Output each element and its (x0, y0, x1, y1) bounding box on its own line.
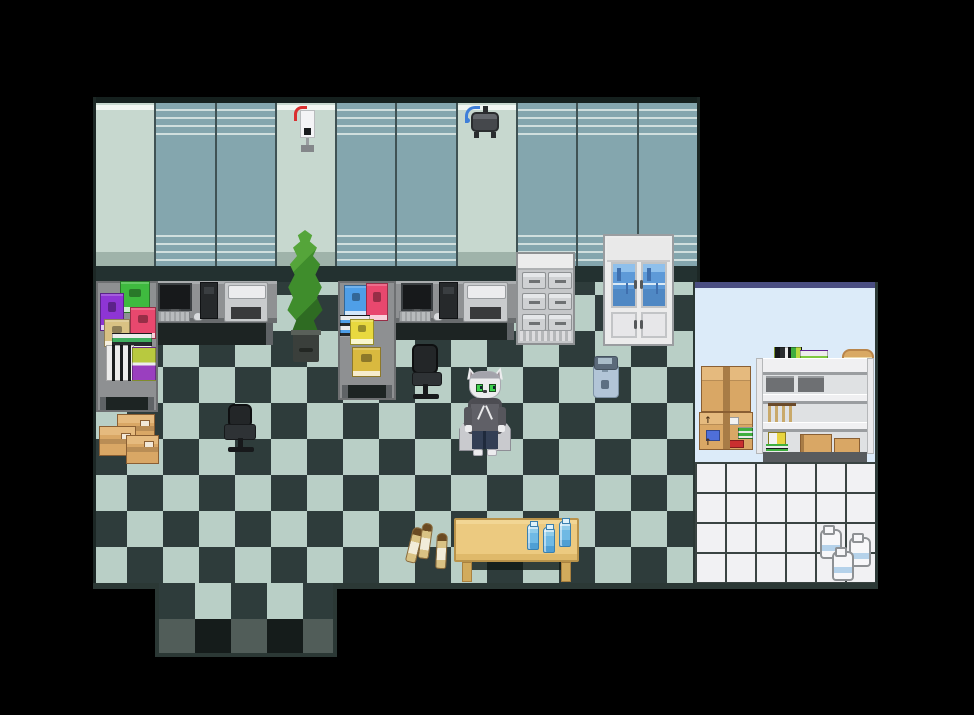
chair-stem (423, 384, 428, 394)
table-shadow (472, 562, 561, 570)
wall-panel-window (215, 97, 275, 282)
computer-monitor[interactable] (158, 283, 192, 311)
potted-plant (285, 230, 325, 362)
book-stack (132, 347, 156, 381)
gray-bin (798, 376, 824, 392)
cat-foot (487, 449, 497, 456)
dispenser-pole (306, 138, 309, 145)
cat-eye (476, 384, 483, 392)
drawer-cabinet-top (518, 254, 573, 270)
wall-panel-window (335, 97, 395, 282)
shelf-base (763, 452, 867, 462)
projector-foot (474, 132, 479, 138)
wall-panel-window (154, 97, 214, 282)
striped-books (106, 345, 134, 381)
water-bottle (543, 527, 555, 553)
yellow-book (350, 319, 374, 345)
drawer[interactable] (522, 314, 546, 331)
door-handle (640, 280, 643, 289)
arrow-marks: ↑ (704, 439, 711, 448)
cat-head (469, 371, 501, 399)
water-bottle (527, 524, 539, 550)
printer[interactable] (463, 282, 508, 322)
chair-back (412, 344, 438, 374)
wall-panel-pale (96, 97, 154, 282)
glass-cabinet[interactable] (603, 234, 674, 346)
stacked-boxes[interactable]: ↑ ↑ (699, 366, 753, 450)
storage-shelving[interactable] (756, 350, 874, 462)
computer-monitor[interactable] (401, 283, 433, 311)
player-character-cat[interactable] (461, 367, 509, 459)
drawer[interactable] (548, 272, 572, 289)
table-leg (462, 562, 472, 582)
table-leg (561, 562, 571, 582)
drawer-cabinet-base (520, 330, 571, 341)
cat-paw (498, 425, 505, 432)
pc-tower[interactable] (200, 282, 218, 319)
sanitizer-dispenser[interactable] (292, 106, 318, 154)
cat-arm (464, 407, 472, 427)
bookshelf-center[interactable] (338, 281, 396, 400)
keyboard[interactable] (399, 311, 431, 322)
projector (465, 104, 503, 142)
cat-foot (473, 449, 483, 456)
plant-pot (293, 330, 319, 362)
bin-label (598, 358, 612, 364)
green-stack (766, 444, 788, 452)
water-bottles[interactable] (526, 520, 574, 552)
green-sticker (738, 427, 753, 439)
white-jugs[interactable] (819, 526, 877, 582)
dispenser-base (301, 145, 314, 152)
drawer[interactable] (548, 293, 572, 310)
arrow-marks: ↑ (704, 417, 711, 426)
yellow-binder (352, 347, 381, 377)
cat-paw (465, 425, 472, 432)
bin-slot (602, 370, 608, 372)
door-handle (634, 280, 637, 289)
cat-hoodie (468, 398, 502, 434)
red-label (727, 440, 744, 448)
projector-foot (491, 132, 496, 138)
cabinet-door-right[interactable] (641, 312, 667, 338)
game-scene: ↑↑ ↑↑ ↑ ↑ (0, 0, 974, 715)
shelf-post (756, 358, 763, 454)
drawer[interactable] (522, 272, 546, 289)
chair-base (413, 394, 439, 399)
bin-emblem (601, 380, 609, 389)
gray-bin (766, 376, 794, 392)
plant-foliage (285, 230, 325, 334)
small-carton (800, 434, 832, 454)
jug (832, 551, 854, 581)
cat-arm (498, 407, 506, 427)
shelf-bay (763, 372, 867, 394)
glass-bottles[interactable] (409, 521, 453, 573)
top-box (701, 366, 751, 412)
waste-bin[interactable] (591, 354, 619, 398)
exit-shadow-row (159, 619, 333, 653)
glass-door-right[interactable] (641, 262, 667, 308)
cat-nose (483, 390, 487, 393)
cat-eye (489, 384, 496, 392)
shelf-post (867, 358, 874, 454)
bookshelf-left[interactable] (96, 281, 158, 412)
storage-room-header (695, 282, 875, 288)
small-crates[interactable] (99, 414, 157, 462)
office-chair[interactable] (222, 402, 260, 458)
blue-book (344, 285, 368, 317)
water-bottle (559, 521, 571, 547)
drawer[interactable] (522, 293, 546, 310)
dispenser-screen (304, 128, 311, 135)
wall-panel-window (395, 97, 455, 282)
crate (126, 435, 159, 464)
shelf-bay (763, 429, 867, 452)
shelf-bay (763, 401, 867, 422)
exit-floor-row (159, 583, 333, 619)
door-handle (634, 320, 637, 329)
drawer[interactable] (548, 314, 572, 331)
pc-tower[interactable] (439, 282, 458, 319)
bottle (435, 533, 448, 570)
cable-end (465, 118, 470, 123)
projector-body (471, 112, 499, 132)
brush-set (768, 403, 796, 424)
bottom-box: ↑ ↑ (699, 412, 753, 450)
door-handle (640, 320, 643, 329)
exit-corridor[interactable] (155, 583, 337, 657)
cabinet-top (607, 238, 670, 262)
cat-pants (472, 431, 498, 449)
drawer-cabinet[interactable] (516, 252, 575, 345)
office-chair[interactable] (408, 344, 444, 402)
white-label (728, 417, 739, 425)
printer[interactable] (224, 282, 268, 322)
keyboard[interactable] (158, 311, 190, 322)
chair-base (228, 447, 254, 452)
